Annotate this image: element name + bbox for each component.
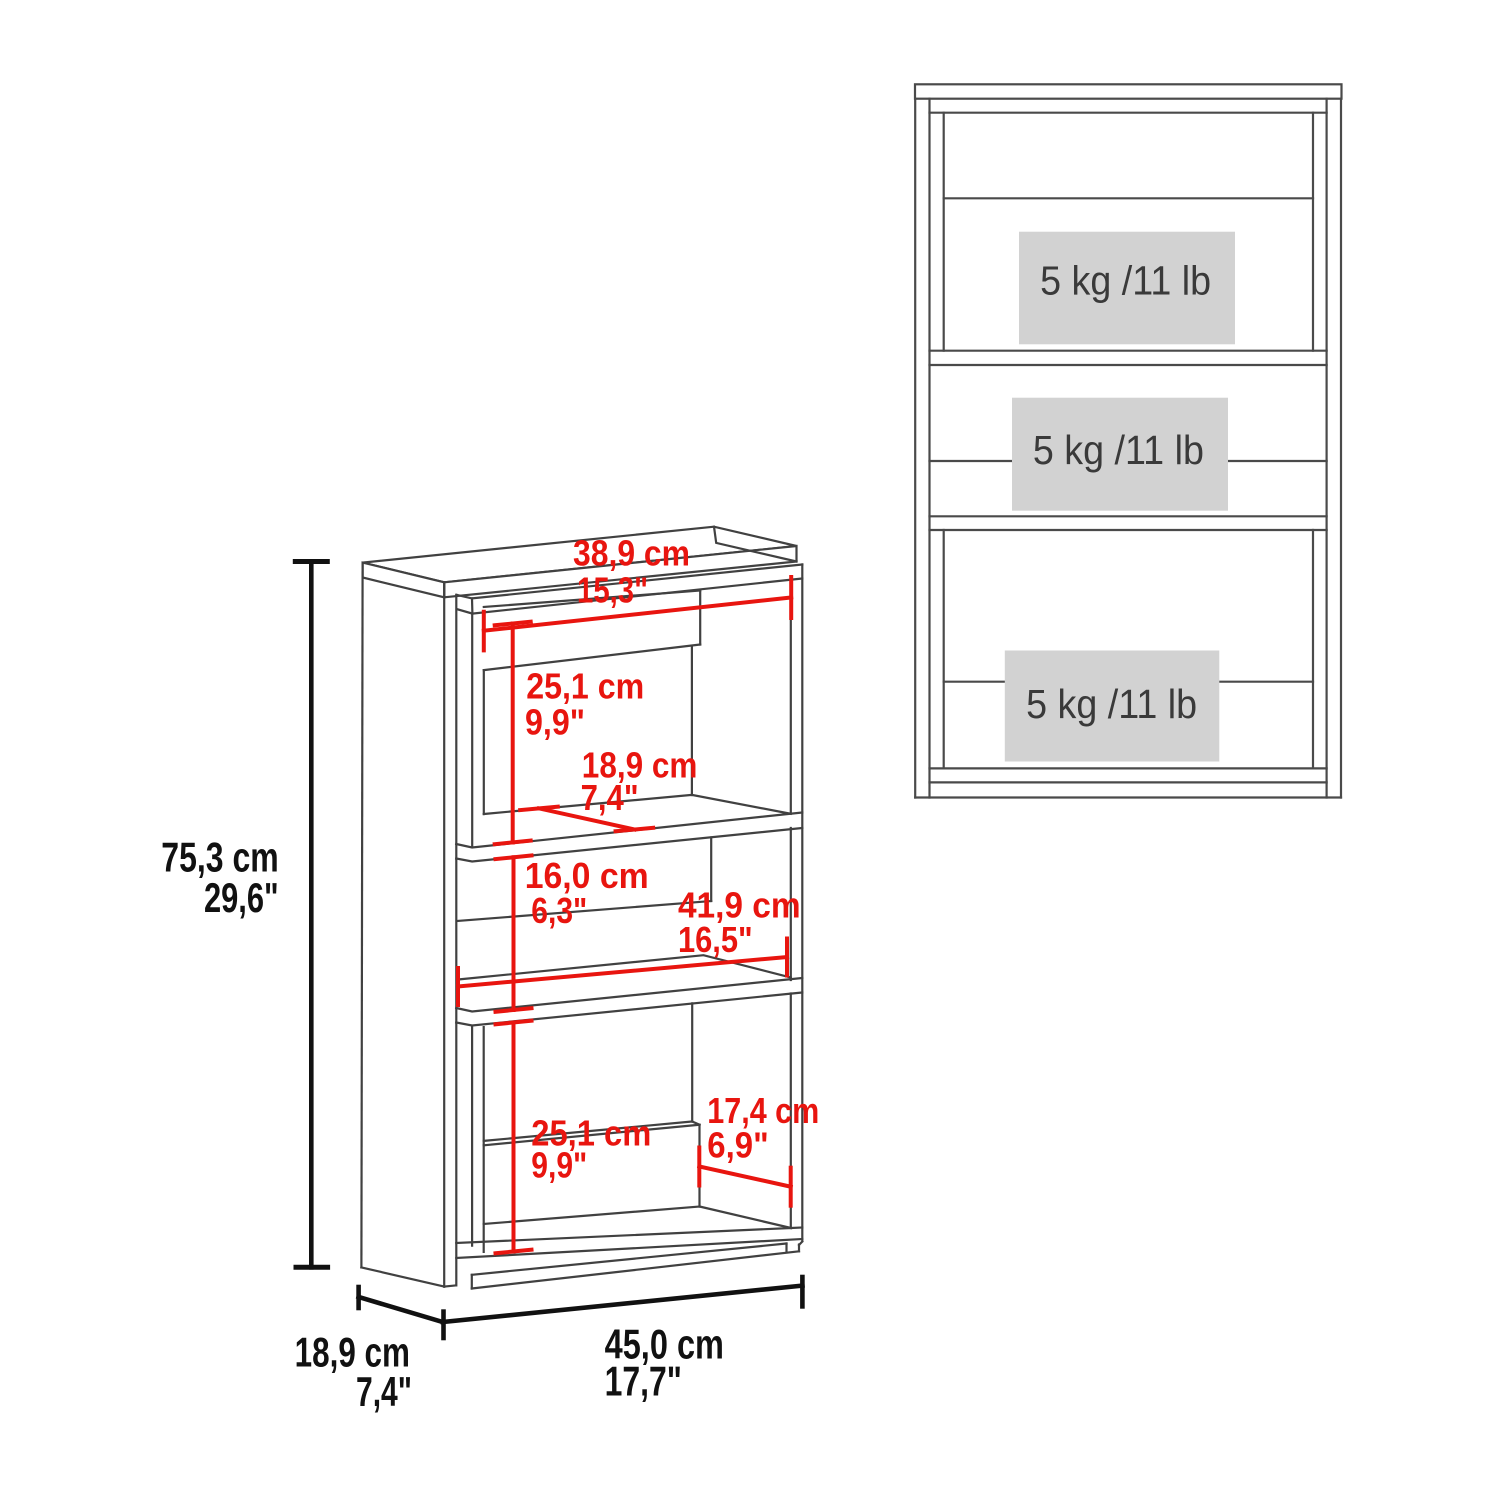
svg-text:7,4": 7,4"	[356, 1368, 412, 1415]
svg-text:15,3": 15,3"	[577, 570, 648, 611]
svg-text:16,5": 16,5"	[678, 919, 753, 960]
svg-text:9,9": 9,9"	[525, 701, 585, 742]
svg-text:7,4": 7,4"	[581, 777, 639, 818]
svg-text:5 kg /11 lb: 5 kg /11 lb	[1033, 427, 1204, 473]
svg-text:29,6": 29,6"	[204, 874, 279, 921]
svg-text:5 kg /11 lb: 5 kg /11 lb	[1040, 258, 1211, 304]
svg-text:38,9 cm: 38,9 cm	[573, 533, 690, 574]
svg-text:6,9": 6,9"	[707, 1125, 768, 1166]
svg-text:6,3": 6,3"	[531, 890, 587, 931]
svg-text:5 kg /11 lb: 5 kg /11 lb	[1026, 681, 1197, 727]
svg-text:9,9": 9,9"	[531, 1145, 587, 1186]
svg-text:17,7": 17,7"	[605, 1357, 682, 1404]
